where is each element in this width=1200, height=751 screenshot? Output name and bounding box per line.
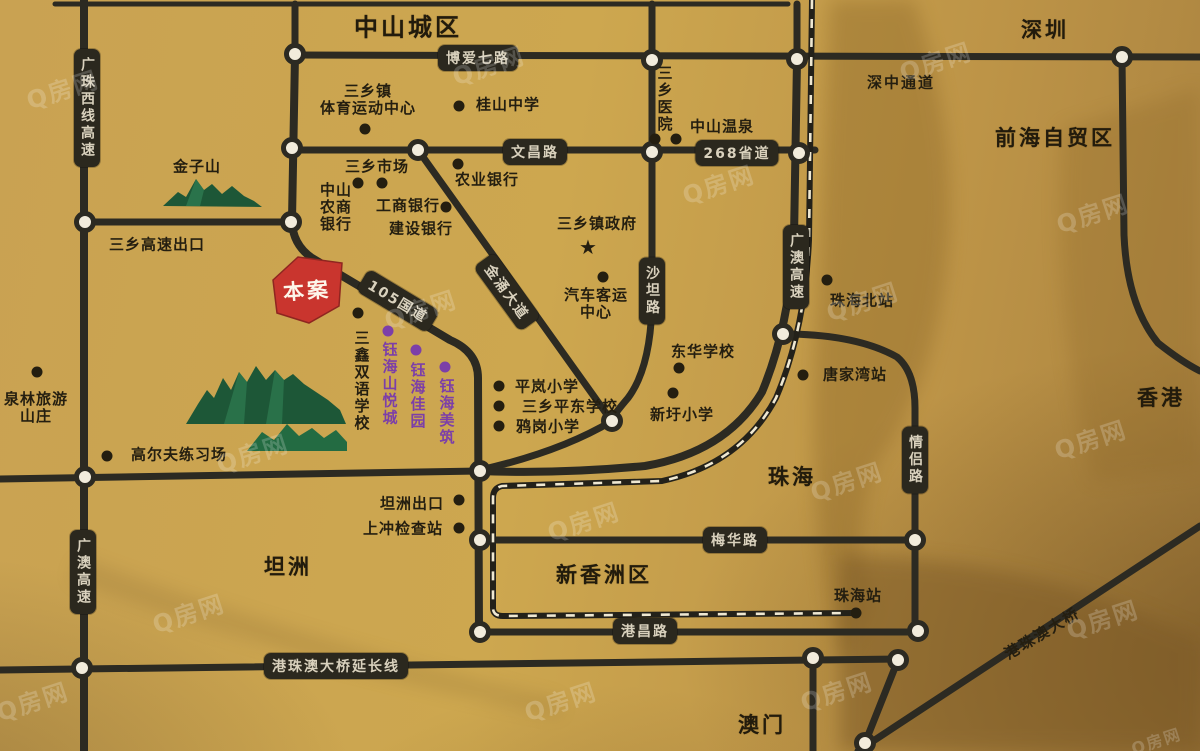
watermark: Q房网 [1051, 184, 1133, 240]
watermark: Q房网 [805, 452, 887, 508]
watermark: Q房网 [147, 584, 229, 640]
watermark: Q房网 [379, 280, 461, 336]
watermarks: Q房网Q房网Q房网Q房网Q房网Q房网Q房网Q房网Q房网Q房网Q房网Q房网Q房网Q… [0, 0, 1200, 751]
location-map: 本案 中山城区深圳前海自贸区香港珠海坦洲新香洲区澳门三乡镇体育运动中心桂山中学三… [0, 0, 1200, 751]
watermark: Q房网 [677, 155, 759, 211]
watermark: Q房网 [542, 492, 624, 548]
watermark: Q房网 [1049, 410, 1131, 466]
watermark: Q房网 [519, 672, 601, 728]
watermark: Q房网 [211, 424, 293, 480]
watermark: Q房网 [21, 60, 103, 116]
watermark: Q房网 [795, 662, 877, 718]
watermark: Q房网 [894, 32, 976, 88]
watermark: Q房网 [447, 36, 529, 92]
watermark: Q房网 [1061, 590, 1143, 646]
watermark: Q房网 [0, 672, 73, 728]
watermark: Q房网 [821, 272, 903, 328]
watermark: Q房网 [1128, 721, 1184, 751]
